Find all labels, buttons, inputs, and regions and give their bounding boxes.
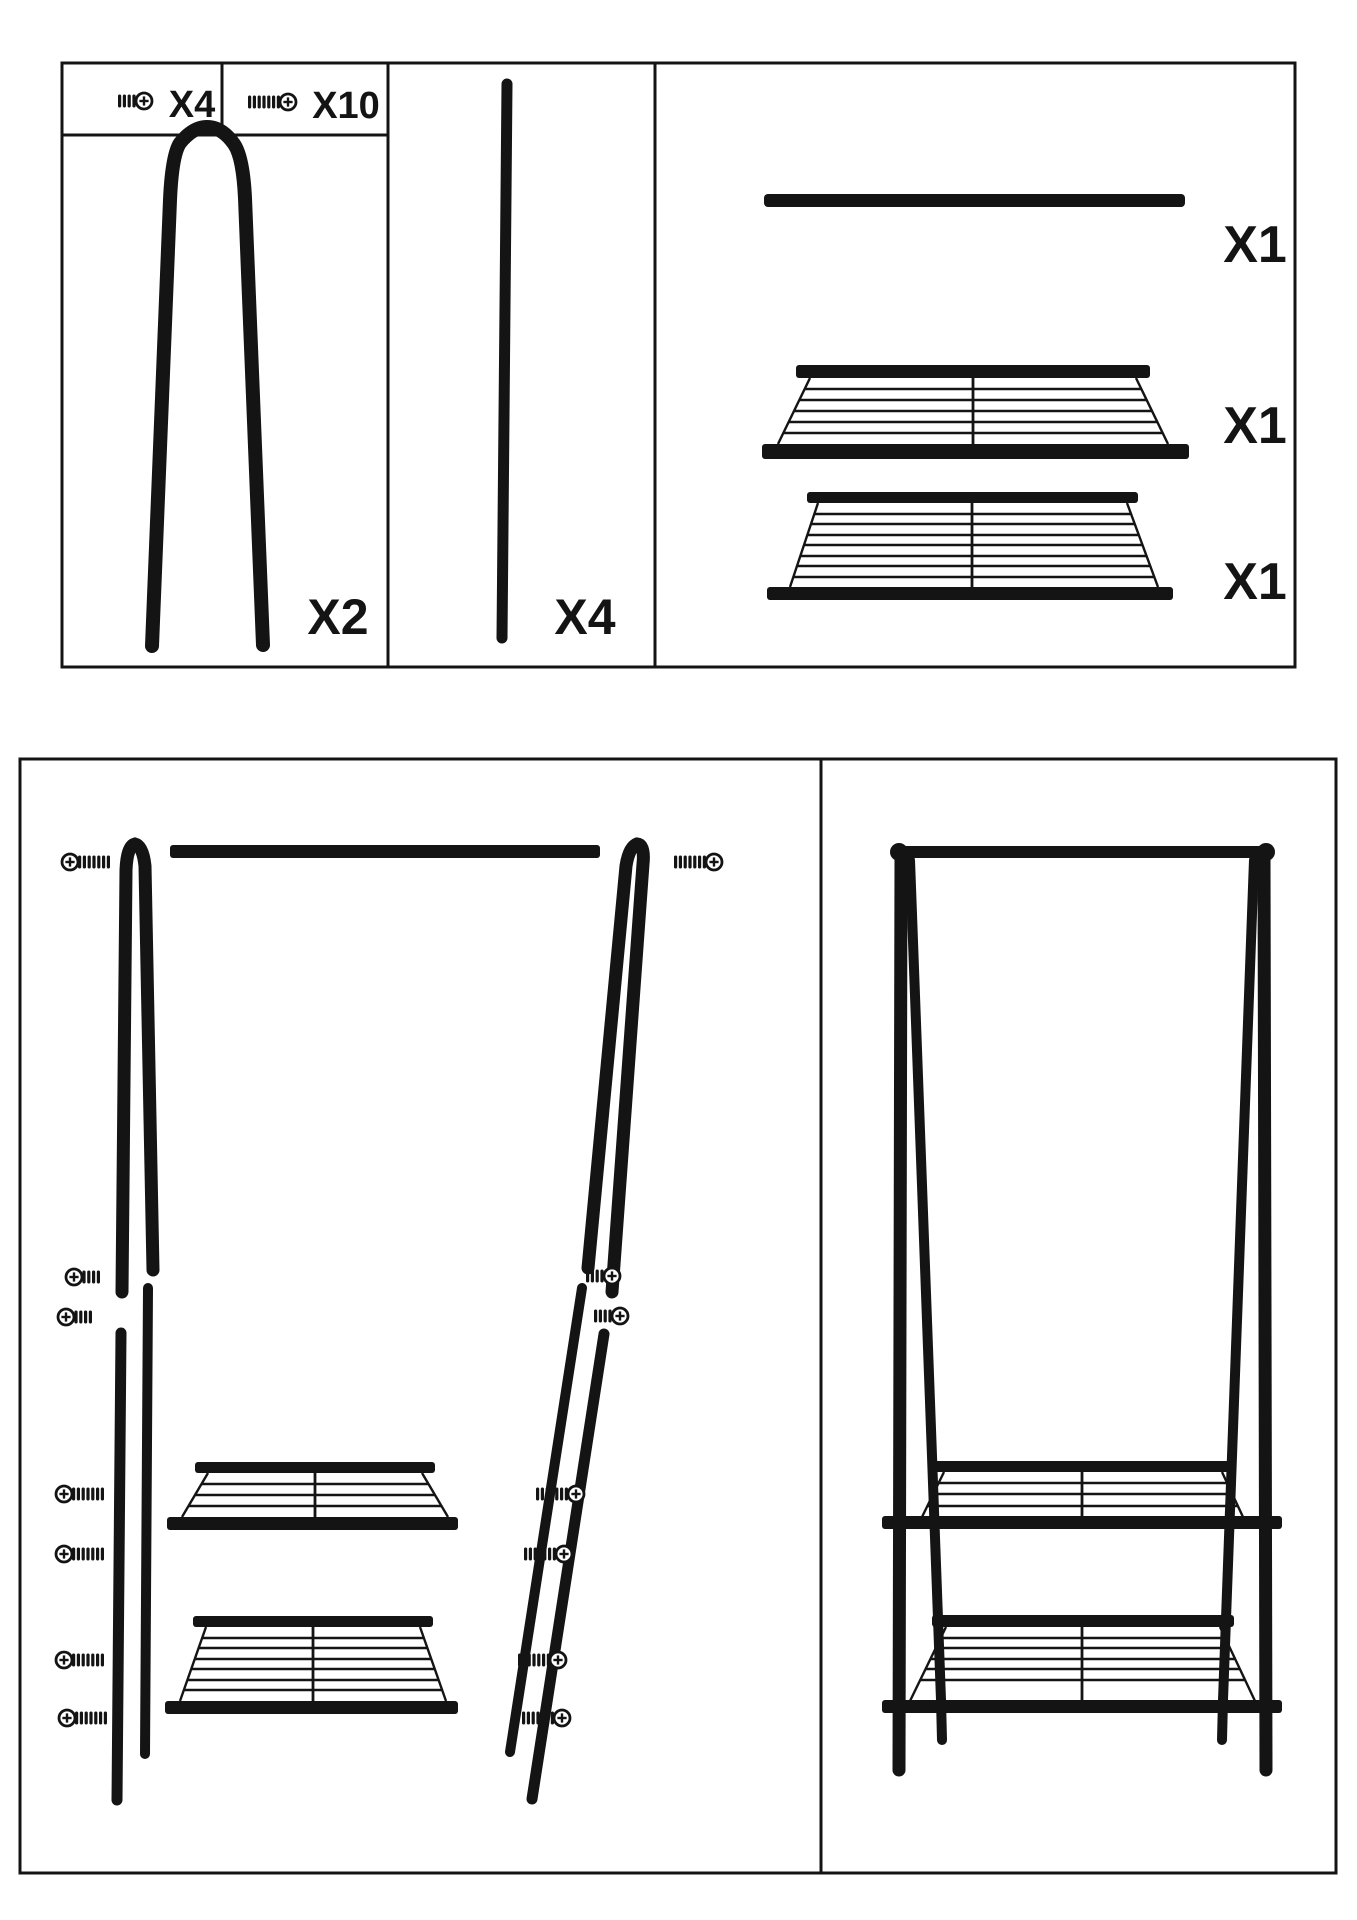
exploded-lower-shelf (165, 1616, 458, 1714)
hardware-box-long-screws: X10 (248, 85, 380, 127)
exploded-left-a-frame (122, 844, 153, 1292)
joint-bolt (917, 1168, 926, 1177)
long-screw-icon (56, 1486, 104, 1502)
long-screw-icon (536, 1486, 584, 1502)
middle-shelf-qty-label: X1 (1223, 397, 1287, 455)
rail-part-drawing (764, 194, 1185, 207)
assembly-diagram: X4 X10 X2 X4 X1 (0, 0, 1357, 1920)
assembled-front-right-leg (1264, 856, 1266, 1770)
exploded-rail (170, 845, 600, 858)
assembled-view (882, 843, 1282, 1770)
a-frame-part-drawing (152, 127, 263, 646)
long-screw-icon (518, 1652, 566, 1668)
rail-part: X1 (764, 194, 1287, 274)
pole-qty-label: X4 (554, 589, 615, 645)
assembled-top-rail (893, 846, 1272, 858)
short-screw-qty-label: X4 (169, 84, 215, 126)
assembled-front-left-leg (899, 856, 901, 1770)
exploded-right-a-frame (588, 844, 643, 1292)
assembled-rear-right-leg (1223, 860, 1254, 1700)
pole-part-drawing (502, 84, 507, 638)
short-screw-icon (594, 1308, 628, 1324)
long-screw-icon (56, 1652, 104, 1668)
exploded-view (56, 844, 722, 1800)
long-screw-icon (674, 854, 722, 870)
bottom-shelf-part: X1 (767, 492, 1287, 611)
short-screw-icon (586, 1268, 620, 1284)
joint-bolt (1239, 1168, 1248, 1177)
long-screw-icon (59, 1710, 107, 1726)
assembled-rear-left-leg (910, 860, 941, 1700)
hardware-box-short-screws: X4 (118, 84, 215, 126)
parts-panel: X4 X10 X2 X4 X1 (62, 63, 1295, 667)
exploded-left-front-pole (117, 1333, 121, 1800)
short-screw-icon (58, 1309, 92, 1325)
exploded-upper-shelf (167, 1462, 458, 1530)
instruction-sheet: X4 X10 X2 X4 X1 (0, 0, 1357, 1920)
long-screw-icon (62, 854, 110, 870)
exploded-left-rear-pole (145, 1288, 148, 1754)
rail-qty-label: X1 (1223, 216, 1287, 274)
assembled-upper-shelf (882, 1461, 1282, 1529)
long-screw-icon (524, 1546, 572, 1562)
a-frame-part: X2 (152, 127, 369, 646)
middle-shelf-part: X1 (762, 365, 1287, 459)
a-frame-qty-label: X2 (307, 589, 368, 645)
short-screw-icon (66, 1269, 100, 1285)
pole-part: X4 (502, 84, 616, 645)
long-screw-icon (56, 1546, 104, 1562)
short-screw-icon (118, 93, 152, 109)
assembly-panel (20, 759, 1336, 1873)
long-screw-qty-label: X10 (312, 85, 380, 127)
bottom-shelf-qty-label: X1 (1223, 553, 1287, 611)
long-screw-icon (248, 94, 296, 110)
